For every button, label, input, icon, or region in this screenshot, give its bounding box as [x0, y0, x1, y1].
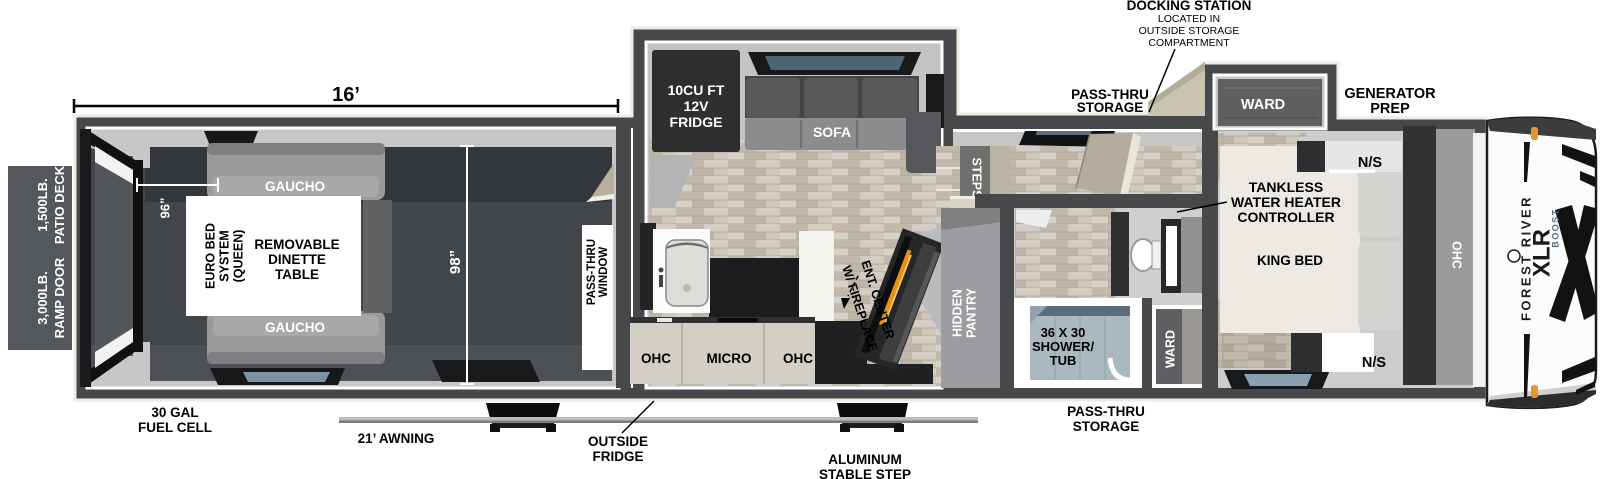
svg-text:DINETTE: DINETTE [268, 252, 326, 267]
svg-text:21’ AWNING: 21’ AWNING [358, 431, 435, 446]
svg-text:TUB: TUB [1050, 353, 1077, 368]
svg-text:36 X 30: 36 X 30 [1041, 325, 1086, 340]
svg-text:GAUCHO: GAUCHO [265, 320, 325, 335]
svg-text:WARD: WARD [1241, 97, 1285, 113]
svg-text:OHC: OHC [783, 351, 813, 366]
svg-text:OHC: OHC [1450, 241, 1464, 269]
svg-text:1,500LB.: 1,500LB. [35, 178, 50, 231]
svg-text:DOCKING STATION: DOCKING STATION [1127, 0, 1252, 13]
svg-text:GENERATOR: GENERATOR [1344, 86, 1436, 102]
svg-text:PASS-THRU: PASS-THRU [1067, 404, 1145, 419]
svg-text:MICRO: MICRO [707, 351, 752, 366]
svg-text:16’: 16’ [332, 84, 360, 106]
svg-text:PASS-THRU: PASS-THRU [586, 239, 598, 305]
svg-text:OHC: OHC [641, 351, 671, 366]
svg-text:SYSTEM: SYSTEM [217, 230, 231, 281]
svg-text:96”: 96” [157, 198, 172, 219]
svg-text:STABLE STEP: STABLE STEP [819, 467, 911, 479]
svg-text:HIDDEN: HIDDEN [950, 289, 964, 337]
svg-text:12V: 12V [684, 98, 710, 114]
svg-text:REMOVABLE: REMOVABLE [254, 237, 339, 252]
svg-text:SHOWER/: SHOWER/ [1032, 339, 1095, 354]
svg-text:KING BED: KING BED [1257, 253, 1323, 268]
svg-text:PREP: PREP [1370, 101, 1410, 117]
svg-text:STORAGE: STORAGE [1077, 100, 1144, 115]
svg-text:TABLE: TABLE [275, 267, 319, 282]
svg-text:WATER HEATER: WATER HEATER [1231, 194, 1341, 210]
svg-text:3,000LB.: 3,000LB. [35, 271, 50, 324]
svg-text:LOCATED IN: LOCATED IN [1158, 13, 1220, 25]
svg-text:CONTROLLER: CONTROLLER [1237, 209, 1334, 225]
svg-text:RAMP DOOR: RAMP DOOR [52, 257, 67, 338]
svg-text:N/S: N/S [1358, 155, 1383, 171]
svg-text:TANKLESS: TANKLESS [1249, 179, 1323, 195]
svg-text:30 GAL: 30 GAL [151, 405, 198, 420]
svg-text:COMPARTMENT: COMPARTMENT [1148, 37, 1230, 49]
svg-text:WINDOW: WINDOW [598, 247, 610, 298]
svg-text:10CU FT: 10CU FT [668, 82, 725, 98]
svg-text:OUTSIDE: OUTSIDE [588, 434, 648, 449]
svg-text:98”: 98” [447, 250, 464, 274]
svg-text:OUTSIDE STORAGE: OUTSIDE STORAGE [1139, 25, 1240, 37]
svg-text:BOOST: BOOST [1550, 208, 1560, 248]
svg-text:SOFA: SOFA [813, 124, 851, 140]
svg-text:WARD: WARD [1163, 330, 1177, 368]
svg-text:FUEL CELL: FUEL CELL [138, 420, 212, 435]
svg-text:PANTRY: PANTRY [964, 287, 978, 338]
svg-text:GAUCHO: GAUCHO [265, 179, 325, 194]
svg-text:N/S: N/S [1362, 355, 1387, 371]
svg-text:FRIDGE: FRIDGE [592, 449, 643, 464]
svg-text:STEPS: STEPS [970, 158, 984, 199]
svg-text:EURO BED: EURO BED [203, 223, 217, 289]
svg-text:(QUEEN): (QUEEN) [231, 230, 245, 283]
svg-text:ALUMINUM: ALUMINUM [828, 452, 902, 467]
svg-text:STORAGE: STORAGE [1073, 419, 1140, 434]
svg-text:FRIDGE: FRIDGE [670, 114, 723, 130]
svg-text:PATIO DECK: PATIO DECK [52, 165, 67, 244]
